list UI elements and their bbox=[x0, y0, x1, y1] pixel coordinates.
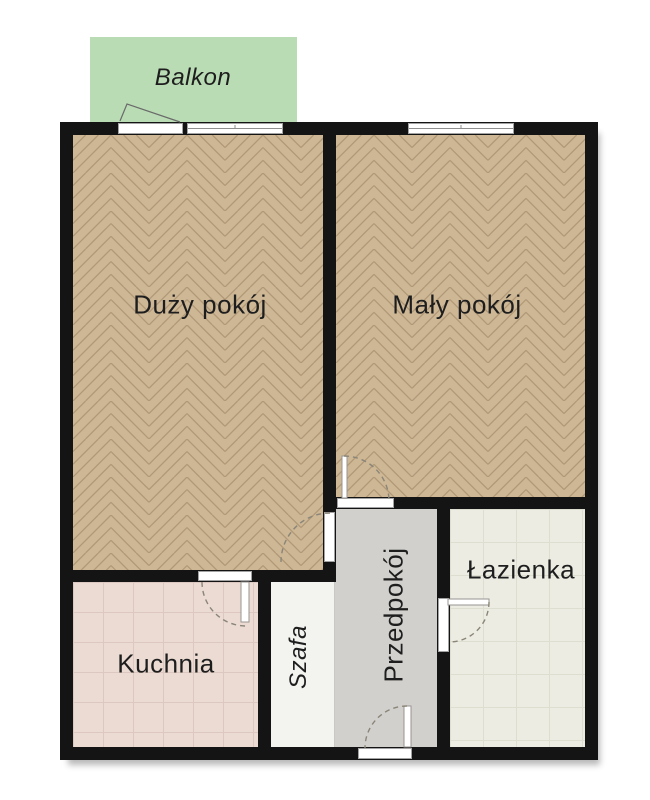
wall-outer-left bbox=[60, 122, 73, 760]
duzy-pokoj-door-opening bbox=[324, 512, 335, 562]
wall-outer-right bbox=[585, 122, 598, 760]
wall-outer-bottom bbox=[60, 747, 598, 760]
przedpokoj-label: Przedpokój bbox=[379, 547, 410, 682]
window-maly-pokoj bbox=[408, 123, 514, 134]
kuchnia-label: Kuchnia bbox=[117, 649, 214, 680]
herringbone-parquet-duzy bbox=[73, 135, 323, 570]
bathroom-door-opening bbox=[438, 598, 449, 652]
szafa-label: Szafa bbox=[285, 625, 313, 689]
floor-plan: Balkon Duży pokój Mały pokój Kuchnia Sza… bbox=[0, 0, 650, 800]
lazienka-label: Łazienka bbox=[467, 555, 575, 586]
balcony-door-opening bbox=[118, 123, 183, 134]
maly-pokoj-door-opening bbox=[337, 498, 394, 508]
szafa-przedpokoj-divider bbox=[334, 582, 335, 747]
maly-pokoj-label: Mały pokój bbox=[392, 290, 521, 321]
window-duzy-pokoj bbox=[187, 123, 283, 134]
entrance-door-opening bbox=[358, 748, 412, 759]
balkon-label: Balkon bbox=[155, 64, 231, 92]
room-duzy-pokoj-floor bbox=[73, 135, 323, 570]
wall-kuchnia-szafa bbox=[258, 582, 271, 747]
duzy-pokoj-label: Duży pokój bbox=[133, 290, 267, 321]
kitchen-door-opening bbox=[198, 571, 252, 581]
room-lazienka-floor bbox=[450, 509, 585, 747]
